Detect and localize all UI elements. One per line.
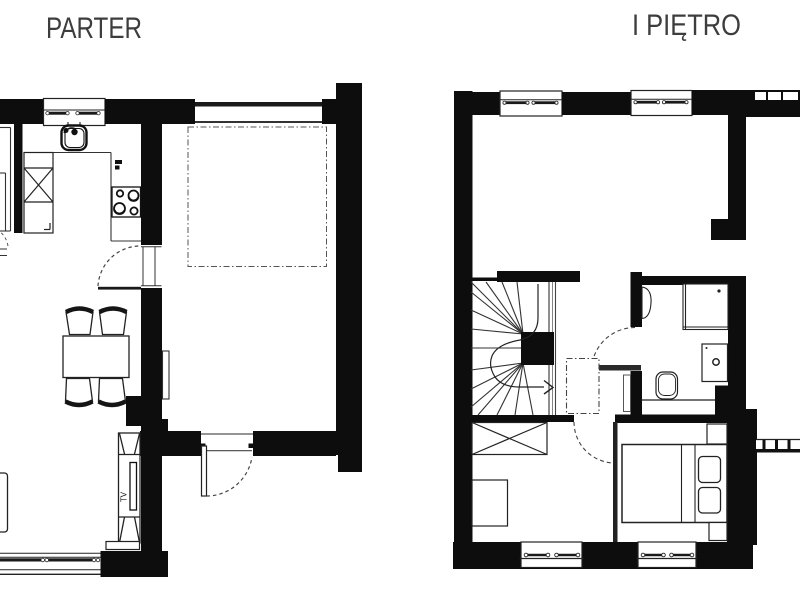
svg-text:TV: TV bbox=[120, 491, 129, 502]
svg-text:I PIĘTRO: I PIĘTRO bbox=[632, 9, 741, 42]
svg-text:PARTER: PARTER bbox=[46, 12, 142, 45]
